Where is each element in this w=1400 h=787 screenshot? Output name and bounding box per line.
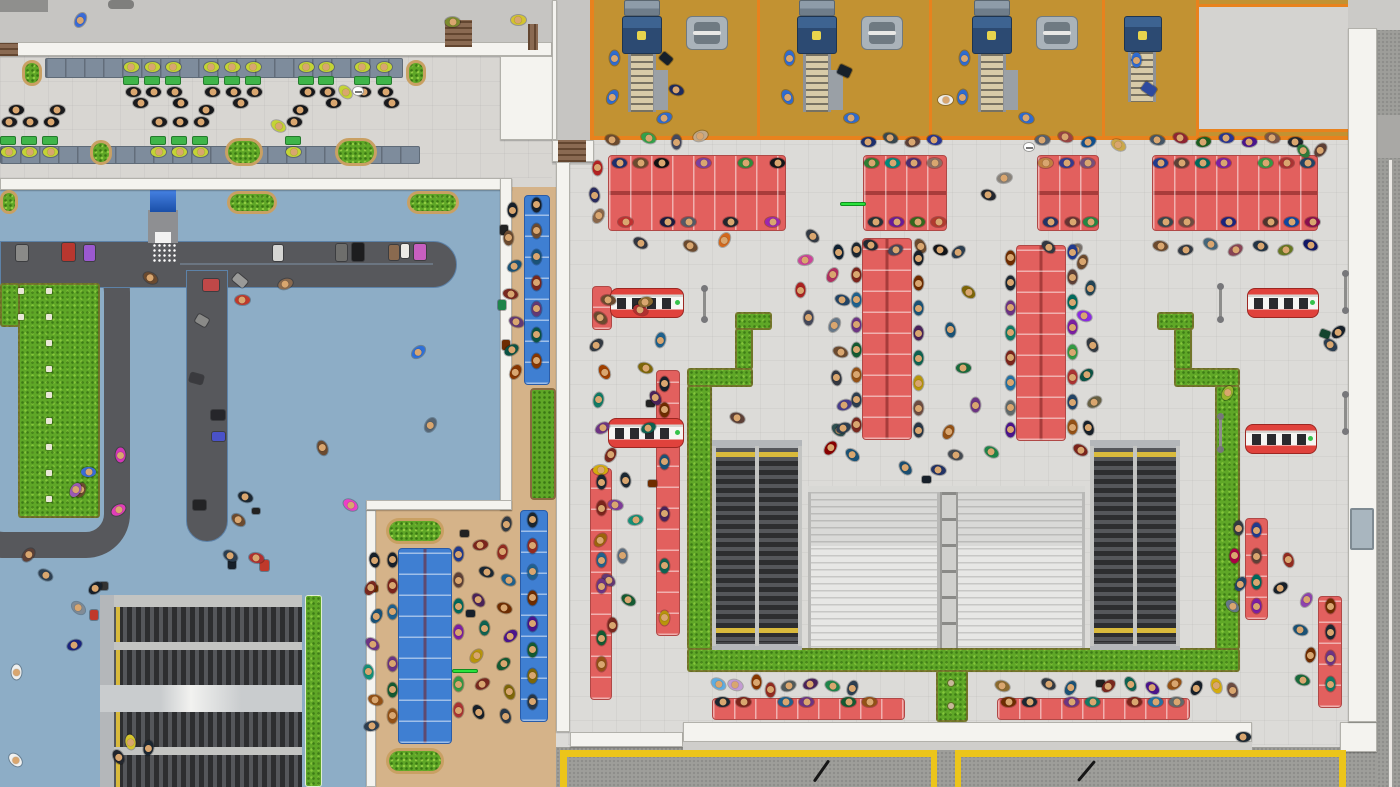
- person[interactable]: [1174, 158, 1189, 168]
- person[interactable]: [528, 695, 538, 710]
- person[interactable]: [1326, 599, 1336, 614]
- person[interactable]: [889, 217, 904, 227]
- person[interactable]: [824, 679, 842, 694]
- person[interactable]: [532, 224, 542, 239]
- person[interactable]: [532, 354, 542, 369]
- person[interactable]: [1006, 351, 1016, 366]
- person[interactable]: [532, 276, 542, 291]
- person[interactable]: [1068, 245, 1078, 260]
- person[interactable]: [1202, 236, 1220, 252]
- person[interactable]: [727, 678, 745, 693]
- person[interactable]: [780, 679, 798, 694]
- person[interactable]: [612, 158, 627, 168]
- person[interactable]: [388, 709, 398, 724]
- person[interactable]: [1068, 295, 1078, 310]
- person[interactable]: [388, 605, 398, 620]
- person[interactable]: [1068, 370, 1078, 385]
- person[interactable]: [528, 539, 538, 554]
- person[interactable]: [133, 98, 148, 108]
- person[interactable]: [320, 87, 335, 97]
- person[interactable]: [246, 62, 261, 72]
- person[interactable]: [830, 370, 842, 387]
- person[interactable]: [1038, 158, 1053, 168]
- person[interactable]: [1127, 697, 1142, 707]
- person[interactable]: [660, 403, 670, 418]
- person[interactable]: [528, 643, 538, 658]
- person[interactable]: [914, 276, 924, 291]
- person[interactable]: [597, 475, 607, 490]
- person[interactable]: [528, 669, 538, 684]
- person[interactable]: [1281, 551, 1296, 569]
- person[interactable]: [1062, 679, 1078, 697]
- person[interactable]: [710, 676, 728, 692]
- person[interactable]: [287, 117, 302, 127]
- person[interactable]: [1195, 136, 1212, 148]
- person[interactable]: [914, 351, 924, 366]
- person[interactable]: [377, 62, 392, 72]
- person[interactable]: [660, 455, 670, 470]
- person[interactable]: [619, 472, 631, 489]
- person[interactable]: [173, 98, 188, 108]
- person[interactable]: [597, 501, 607, 516]
- person[interactable]: [931, 217, 946, 227]
- person[interactable]: [610, 51, 620, 66]
- person[interactable]: [152, 117, 167, 127]
- person[interactable]: [785, 51, 795, 66]
- person[interactable]: [1234, 521, 1244, 536]
- central-staircase[interactable]: [808, 486, 1085, 648]
- luggage-bag[interactable]: [414, 244, 426, 260]
- person[interactable]: [1252, 523, 1262, 538]
- person[interactable]: [50, 105, 65, 115]
- person[interactable]: [852, 393, 862, 408]
- person[interactable]: [723, 217, 738, 227]
- person[interactable]: [796, 283, 806, 298]
- person[interactable]: [804, 311, 814, 326]
- person[interactable]: [906, 158, 921, 168]
- person[interactable]: [596, 363, 612, 381]
- person[interactable]: [1227, 242, 1245, 258]
- person[interactable]: [1292, 623, 1310, 638]
- person[interactable]: [235, 295, 250, 305]
- person[interactable]: [618, 217, 633, 227]
- person[interactable]: [1236, 732, 1251, 742]
- person[interactable]: [608, 618, 618, 633]
- person[interactable]: [1001, 697, 1016, 707]
- person[interactable]: [682, 238, 700, 254]
- person[interactable]: [1043, 217, 1058, 227]
- person[interactable]: [1084, 280, 1096, 297]
- person[interactable]: [1006, 423, 1016, 438]
- person[interactable]: [845, 679, 860, 697]
- person[interactable]: [654, 332, 666, 349]
- person[interactable]: [971, 398, 981, 413]
- person[interactable]: [293, 105, 308, 115]
- person[interactable]: [797, 254, 814, 266]
- person[interactable]: [388, 683, 398, 698]
- person[interactable]: [1068, 345, 1078, 360]
- person[interactable]: [319, 62, 334, 72]
- person[interactable]: [914, 301, 924, 316]
- person[interactable]: [822, 439, 839, 457]
- person[interactable]: [1302, 237, 1320, 252]
- person[interactable]: [950, 243, 968, 260]
- person[interactable]: [1219, 132, 1235, 143]
- person[interactable]: [1225, 681, 1240, 699]
- person[interactable]: [1068, 420, 1078, 435]
- person[interactable]: [145, 62, 160, 72]
- person[interactable]: [1279, 158, 1294, 168]
- person[interactable]: [504, 231, 514, 246]
- person[interactable]: [588, 336, 606, 353]
- person[interactable]: [454, 599, 464, 614]
- bench-column-double[interactable]: [1016, 245, 1066, 441]
- person[interactable]: [81, 467, 96, 477]
- person[interactable]: [1242, 136, 1258, 147]
- person[interactable]: [914, 251, 924, 266]
- person[interactable]: [1230, 549, 1240, 564]
- person[interactable]: [528, 513, 538, 528]
- person[interactable]: [1006, 401, 1016, 416]
- person[interactable]: [205, 87, 220, 97]
- person[interactable]: [1006, 276, 1016, 291]
- person[interactable]: [199, 105, 214, 115]
- person[interactable]: [1144, 679, 1162, 696]
- person[interactable]: [1006, 251, 1016, 266]
- person[interactable]: [1068, 395, 1078, 410]
- person[interactable]: [454, 573, 464, 588]
- person[interactable]: [1305, 217, 1320, 227]
- person[interactable]: [836, 398, 854, 413]
- person[interactable]: [1322, 336, 1340, 353]
- person[interactable]: [454, 677, 464, 692]
- person[interactable]: [766, 683, 776, 698]
- person[interactable]: [1188, 679, 1204, 697]
- person[interactable]: [593, 161, 603, 176]
- person[interactable]: [388, 553, 398, 568]
- person[interactable]: [511, 15, 526, 25]
- person[interactable]: [799, 697, 814, 707]
- person[interactable]: [844, 113, 859, 123]
- person[interactable]: [445, 17, 460, 27]
- person[interactable]: [852, 243, 862, 258]
- person[interactable]: [146, 87, 161, 97]
- luggage-bag[interactable]: [16, 245, 28, 261]
- luggage-bag[interactable]: [62, 243, 75, 261]
- person[interactable]: [1086, 394, 1104, 410]
- person[interactable]: [1158, 217, 1173, 227]
- person[interactable]: [841, 697, 856, 707]
- person[interactable]: [765, 217, 780, 227]
- person[interactable]: [852, 368, 862, 383]
- person[interactable]: [1064, 697, 1079, 707]
- person[interactable]: [627, 514, 644, 526]
- person[interactable]: [1075, 253, 1090, 271]
- person[interactable]: [804, 227, 822, 245]
- person[interactable]: [1209, 677, 1224, 695]
- person[interactable]: [193, 147, 208, 157]
- person[interactable]: [1083, 217, 1098, 227]
- person[interactable]: [852, 268, 862, 283]
- person[interactable]: [204, 62, 219, 72]
- luggage-bag[interactable]: [352, 243, 364, 261]
- person[interactable]: [1177, 244, 1194, 256]
- person[interactable]: [1040, 676, 1058, 692]
- person[interactable]: [597, 657, 607, 672]
- person[interactable]: [1298, 591, 1314, 609]
- person[interactable]: [388, 579, 398, 594]
- person[interactable]: [1252, 575, 1262, 590]
- person[interactable]: [1258, 158, 1273, 168]
- person[interactable]: [384, 98, 399, 108]
- person[interactable]: [355, 62, 370, 72]
- person[interactable]: [947, 448, 964, 462]
- person[interactable]: [752, 675, 762, 690]
- person[interactable]: [956, 363, 971, 373]
- person[interactable]: [1006, 326, 1016, 341]
- person[interactable]: [532, 250, 542, 265]
- person[interactable]: [1081, 419, 1096, 437]
- luggage-bag[interactable]: [336, 244, 347, 261]
- person[interactable]: [1072, 442, 1090, 458]
- luggage-bag[interactable]: [401, 244, 409, 258]
- person[interactable]: [960, 283, 978, 300]
- person[interactable]: [233, 98, 248, 108]
- person[interactable]: [1153, 158, 1168, 168]
- person[interactable]: [151, 147, 166, 157]
- person[interactable]: [172, 147, 187, 157]
- gate-escalator-pair-west[interactable]: [712, 440, 802, 650]
- luggage-bag[interactable]: [498, 300, 506, 310]
- person[interactable]: [299, 62, 314, 72]
- person[interactable]: [1, 147, 16, 157]
- person[interactable]: [593, 465, 608, 475]
- person[interactable]: [43, 147, 58, 157]
- person[interactable]: [1022, 697, 1037, 707]
- person[interactable]: [620, 592, 638, 608]
- person[interactable]: [660, 611, 670, 626]
- person[interactable]: [861, 137, 876, 147]
- person[interactable]: [802, 677, 820, 692]
- person[interactable]: [1084, 336, 1100, 354]
- person[interactable]: [618, 549, 628, 564]
- person[interactable]: [124, 62, 139, 72]
- person[interactable]: [637, 361, 655, 376]
- person[interactable]: [1195, 158, 1210, 168]
- seat-column-blue-double[interactable]: [398, 548, 452, 744]
- person[interactable]: [1221, 217, 1236, 227]
- person[interactable]: [904, 136, 921, 148]
- person[interactable]: [167, 87, 182, 97]
- person[interactable]: [910, 217, 925, 227]
- person[interactable]: [602, 446, 618, 464]
- person[interactable]: [9, 105, 24, 115]
- luggage-bag[interactable]: [389, 245, 399, 260]
- person[interactable]: [1080, 158, 1095, 168]
- person[interactable]: [1284, 217, 1299, 227]
- luggage-bag[interactable]: [193, 500, 206, 510]
- person[interactable]: [1330, 323, 1348, 340]
- person[interactable]: [166, 62, 181, 72]
- person[interactable]: [597, 631, 607, 646]
- person[interactable]: [388, 657, 398, 672]
- person[interactable]: [22, 147, 37, 157]
- person[interactable]: [927, 158, 942, 168]
- vending-machine[interactable]: [1247, 288, 1319, 318]
- luggage-bag[interactable]: [466, 610, 475, 617]
- person[interactable]: [225, 62, 240, 72]
- person[interactable]: [824, 266, 840, 284]
- person[interactable]: [844, 446, 862, 463]
- luggage-bag[interactable]: [90, 610, 98, 620]
- person[interactable]: [1166, 676, 1184, 692]
- person[interactable]: [1294, 673, 1312, 688]
- bench-column-double[interactable]: [862, 238, 912, 440]
- person[interactable]: [633, 158, 648, 168]
- person[interactable]: [480, 621, 490, 636]
- person[interactable]: [1272, 580, 1290, 596]
- person[interactable]: [632, 235, 650, 251]
- person[interactable]: [1169, 697, 1184, 707]
- person[interactable]: [852, 343, 862, 358]
- luggage-bag[interactable]: [212, 432, 225, 441]
- person[interactable]: [681, 217, 696, 227]
- person[interactable]: [23, 117, 38, 127]
- person[interactable]: [126, 87, 141, 97]
- person[interactable]: [592, 392, 604, 409]
- person[interactable]: [930, 464, 947, 476]
- person[interactable]: [1252, 239, 1269, 253]
- person[interactable]: [1300, 158, 1315, 168]
- person[interactable]: [885, 158, 900, 168]
- person[interactable]: [852, 318, 862, 333]
- person[interactable]: [864, 158, 879, 168]
- person[interactable]: [716, 231, 732, 249]
- person[interactable]: [738, 158, 753, 168]
- person[interactable]: [300, 87, 315, 97]
- person[interactable]: [528, 617, 538, 632]
- person[interactable]: [834, 293, 852, 308]
- person[interactable]: [1252, 549, 1262, 564]
- person[interactable]: [1068, 270, 1078, 285]
- person[interactable]: [528, 565, 538, 580]
- person[interactable]: [832, 345, 850, 360]
- person[interactable]: [980, 188, 998, 203]
- person[interactable]: [1068, 320, 1078, 335]
- person[interactable]: [1326, 625, 1336, 640]
- person[interactable]: [590, 207, 606, 225]
- person[interactable]: [736, 697, 751, 707]
- person[interactable]: [2, 117, 17, 127]
- person[interactable]: [1304, 647, 1316, 664]
- person[interactable]: [532, 328, 542, 343]
- person[interactable]: [826, 316, 842, 334]
- person[interactable]: [454, 703, 464, 718]
- person[interactable]: [654, 158, 669, 168]
- person[interactable]: [1006, 301, 1016, 316]
- person[interactable]: [1216, 158, 1231, 168]
- person[interactable]: [832, 244, 844, 261]
- person[interactable]: [1252, 599, 1262, 614]
- person[interactable]: [960, 51, 970, 66]
- person[interactable]: [1078, 366, 1096, 383]
- person[interactable]: [1006, 376, 1016, 391]
- person[interactable]: [326, 98, 341, 108]
- luggage-bag[interactable]: [203, 279, 219, 291]
- person[interactable]: [940, 423, 956, 441]
- luggage-bag[interactable]: [273, 245, 283, 261]
- person[interactable]: [1326, 677, 1336, 692]
- person[interactable]: [660, 559, 670, 574]
- person[interactable]: [660, 217, 675, 227]
- person[interactable]: [226, 87, 241, 97]
- person[interactable]: [1059, 158, 1074, 168]
- luggage-bag[interactable]: [922, 476, 931, 483]
- person[interactable]: [715, 697, 730, 707]
- person[interactable]: [914, 423, 924, 438]
- person[interactable]: [660, 377, 670, 392]
- gate-escalator-pair-east[interactable]: [1090, 440, 1180, 650]
- person[interactable]: [994, 679, 1012, 694]
- person[interactable]: [1326, 651, 1336, 666]
- person[interactable]: [286, 147, 301, 157]
- person[interactable]: [454, 625, 464, 640]
- person[interactable]: [696, 158, 711, 168]
- person[interactable]: [532, 198, 542, 213]
- vending-machine[interactable]: [1245, 424, 1317, 454]
- person[interactable]: [528, 591, 538, 606]
- person[interactable]: [12, 665, 22, 680]
- person[interactable]: [1076, 309, 1094, 324]
- person[interactable]: [532, 302, 542, 317]
- person[interactable]: [862, 697, 877, 707]
- luggage-bag[interactable]: [84, 245, 95, 261]
- person[interactable]: [1065, 217, 1080, 227]
- person[interactable]: [1148, 697, 1163, 707]
- person[interactable]: [1132, 53, 1142, 68]
- person[interactable]: [729, 411, 747, 426]
- luggage-bag[interactable]: [648, 480, 657, 487]
- person[interactable]: [914, 401, 924, 416]
- luggage-bag[interactable]: [252, 508, 260, 514]
- person[interactable]: [897, 459, 914, 477]
- person[interactable]: [868, 217, 883, 227]
- person[interactable]: [932, 243, 950, 258]
- person[interactable]: [672, 135, 682, 150]
- person[interactable]: [597, 553, 607, 568]
- person[interactable]: [173, 117, 188, 127]
- person[interactable]: [778, 697, 793, 707]
- person[interactable]: [983, 444, 1001, 460]
- person[interactable]: [852, 293, 862, 308]
- person[interactable]: [1122, 675, 1138, 693]
- person[interactable]: [1035, 135, 1050, 145]
- person[interactable]: [938, 95, 953, 105]
- person[interactable]: [914, 326, 924, 341]
- person[interactable]: [588, 187, 600, 204]
- person[interactable]: [914, 376, 924, 391]
- person[interactable]: [116, 448, 126, 463]
- person[interactable]: [770, 158, 785, 168]
- person[interactable]: [996, 172, 1013, 184]
- person[interactable]: [44, 117, 59, 127]
- person[interactable]: [247, 87, 262, 97]
- person[interactable]: [944, 322, 956, 339]
- person[interactable]: [660, 507, 670, 522]
- arrivals-escalator-bank[interactable]: [100, 595, 302, 787]
- person[interactable]: [194, 117, 209, 127]
- luggage-bag[interactable]: [211, 410, 225, 420]
